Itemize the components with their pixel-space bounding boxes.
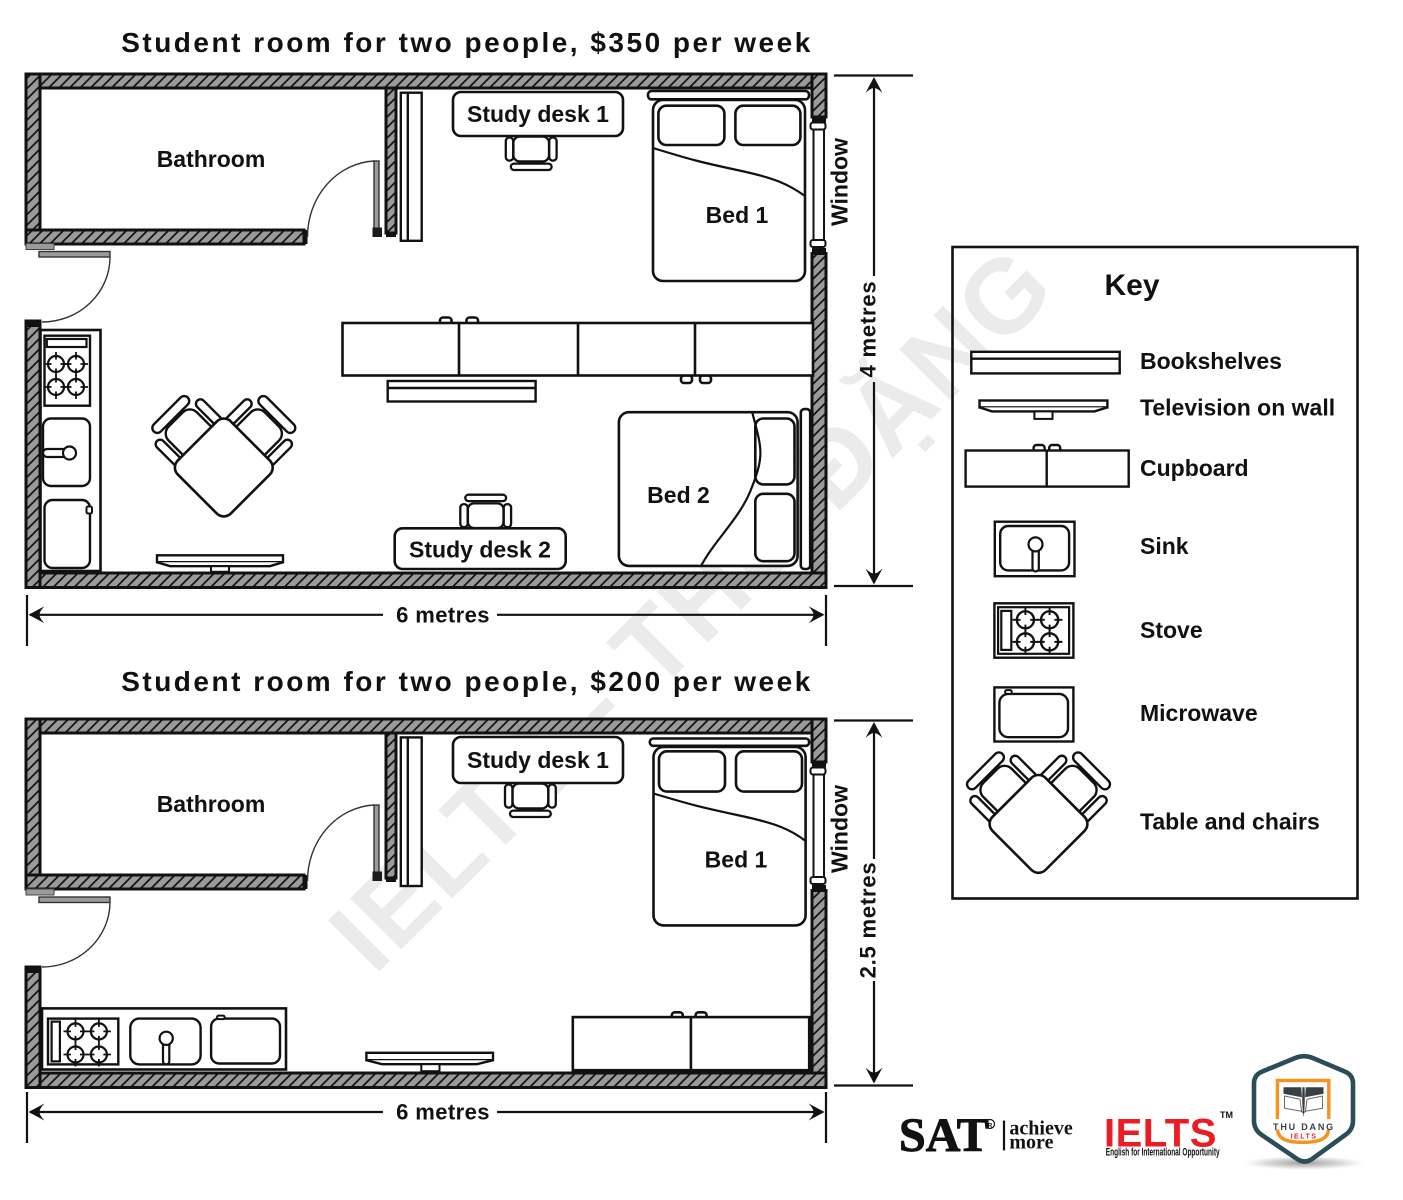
svg-text:Student room for two people, $: Student room for two people, $200 per we… xyxy=(121,666,813,697)
svg-text:Bed 2: Bed 2 xyxy=(647,482,710,508)
svg-text:6 metres: 6 metres xyxy=(396,602,490,627)
svg-text:Bathroom: Bathroom xyxy=(157,146,266,172)
svg-text:Cupboard: Cupboard xyxy=(1140,455,1249,481)
svg-text:Key: Key xyxy=(1104,269,1159,302)
svg-text:English for International Oppo: English for International Opportunity xyxy=(1106,1146,1220,1158)
svg-text:Student room for two people, $: Student room for two people, $350 per we… xyxy=(121,27,813,58)
svg-text:Stove: Stove xyxy=(1140,617,1203,643)
svg-text:Bed 1: Bed 1 xyxy=(705,847,768,873)
svg-text:Bed 1: Bed 1 xyxy=(706,202,769,228)
svg-text:SAT: SAT xyxy=(899,1109,989,1162)
svg-text:Table and chairs: Table and chairs xyxy=(1140,809,1320,835)
svg-text:6 metres: 6 metres xyxy=(396,1100,490,1125)
svg-text:Sink: Sink xyxy=(1140,533,1189,559)
svg-text:2.5 metres: 2.5 metres xyxy=(856,862,881,979)
svg-text:IELTS: IELTS xyxy=(1291,1134,1318,1141)
svg-text:Study desk 1: Study desk 1 xyxy=(467,101,609,127)
svg-text:Window: Window xyxy=(827,138,853,226)
svg-text:Window: Window xyxy=(827,785,853,873)
svg-text:THU DANG: THU DANG xyxy=(1273,1122,1335,1132)
svg-text:Microwave: Microwave xyxy=(1140,700,1258,726)
svg-text:Study desk 1: Study desk 1 xyxy=(467,747,609,773)
svg-text:Study desk 2: Study desk 2 xyxy=(409,537,551,563)
svg-text:TM: TM xyxy=(1220,1110,1233,1120)
svg-text:Bathroom: Bathroom xyxy=(157,791,266,817)
svg-text:R: R xyxy=(988,1123,993,1130)
svg-text:4 metres: 4 metres xyxy=(856,281,881,378)
svg-text:Bookshelves: Bookshelves xyxy=(1140,348,1282,374)
svg-text:Television on wall: Television on wall xyxy=(1140,395,1335,421)
svg-text:more: more xyxy=(1009,1132,1053,1154)
